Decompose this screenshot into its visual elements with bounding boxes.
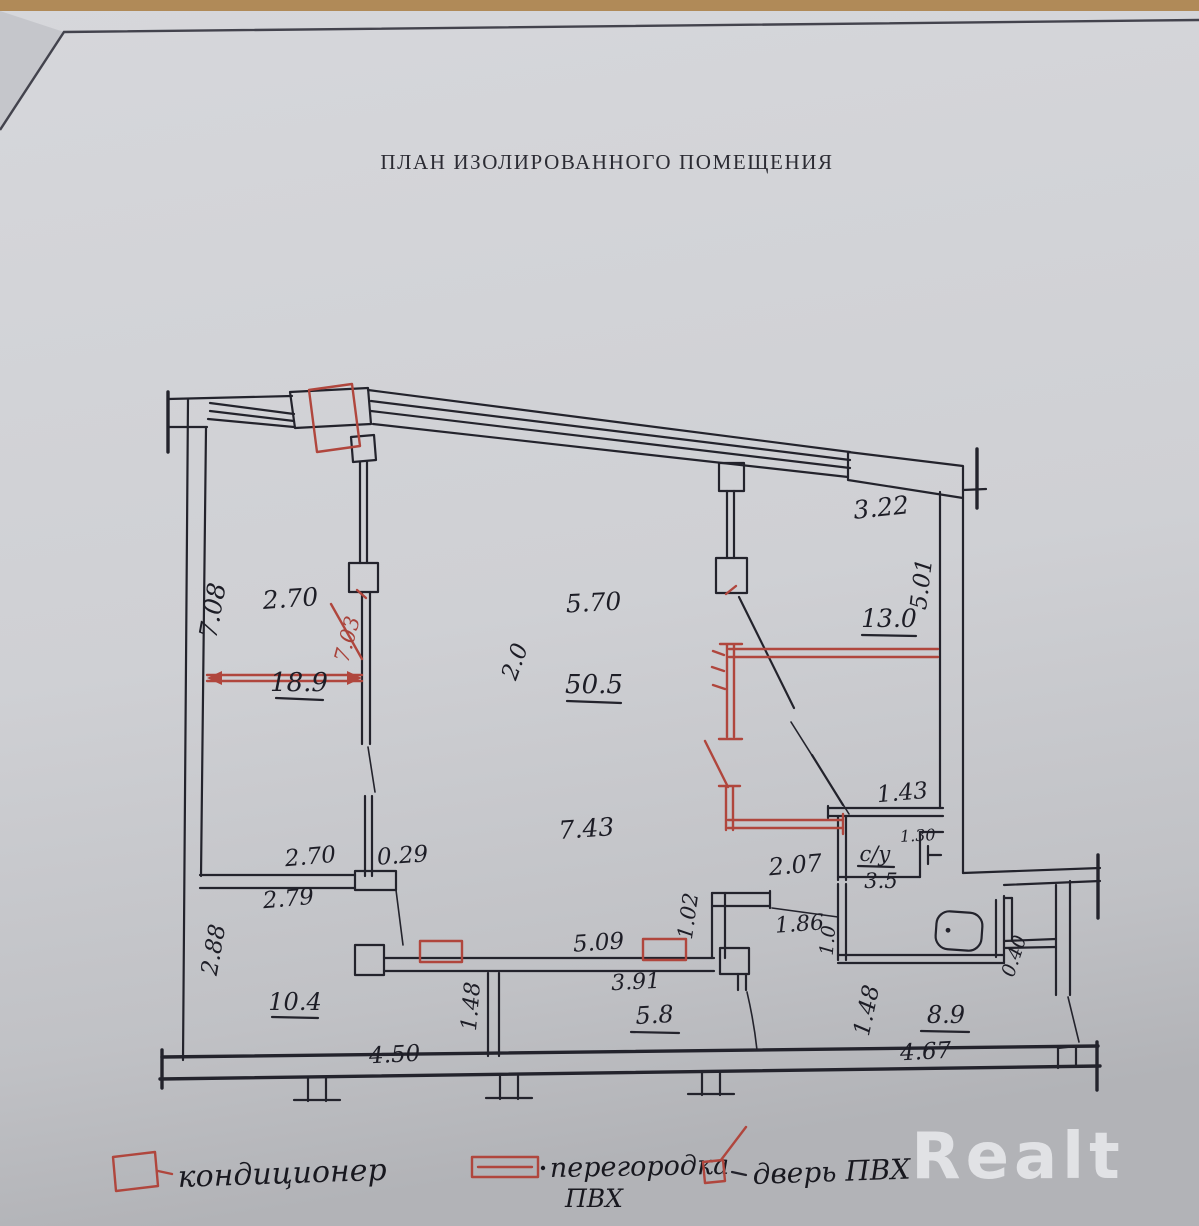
dim-3-91: 3.91 <box>611 969 661 997</box>
legend-ac-label: кондиционер <box>177 1153 387 1195</box>
realt-watermark: Realt <box>911 1120 1124 1194</box>
dim-1-43: 1.43 <box>876 778 929 808</box>
dim-2-07: 2.07 <box>766 849 823 882</box>
label-su: с/у <box>859 842 891 866</box>
room-area-5-8: 5.8 <box>635 1000 675 1030</box>
dim-3-22: 3.22 <box>852 490 910 525</box>
dim-2-70-bottom: 2.70 <box>283 842 337 872</box>
floor-plan-canvas: ПЛАН ИЗОЛИРОВАННОГО ПОМЕЩЕНИЯ <box>0 0 1199 1226</box>
dim-7-43: 7.43 <box>558 812 616 845</box>
dim-1-48-left: 1.48 <box>457 981 486 1032</box>
dim-2-70-top: 2.70 <box>261 582 320 615</box>
dim-1-0: 1.0 <box>816 924 841 956</box>
table-edge <box>0 0 1199 11</box>
room-area-10-4: 10.4 <box>268 988 321 1016</box>
room-area-50-5: 50.5 <box>565 670 623 700</box>
legend-partition-label-2: ПВХ <box>564 1184 624 1213</box>
room-area-18-9: 18.9 <box>270 668 328 698</box>
dim-4-67: 4.67 <box>898 1038 952 1067</box>
dim-4-50: 4.50 <box>367 1041 421 1070</box>
dim-1-30: 1.30 <box>899 825 936 846</box>
room-area-8-9: 8.9 <box>927 1001 965 1029</box>
room-area-13-0: 13.0 <box>861 604 917 633</box>
page-title: ПЛАН ИЗОЛИРОВАННОГО ПОМЕЩЕНИЯ <box>380 150 833 174</box>
dim-5-09: 5.09 <box>572 928 625 958</box>
dim-5-70: 5.70 <box>565 587 622 619</box>
scanned-floor-plan-photo: ПЛАН ИЗОЛИРОВАННОГО ПОМЕЩЕНИЯ <box>0 0 1199 1226</box>
legend-door-label: дверь ПВХ <box>752 1152 912 1191</box>
dim-0-29: 0.29 <box>376 841 429 871</box>
dim-2-79: 2.79 <box>261 884 315 914</box>
area-su-3-5: 3.5 <box>864 869 897 893</box>
